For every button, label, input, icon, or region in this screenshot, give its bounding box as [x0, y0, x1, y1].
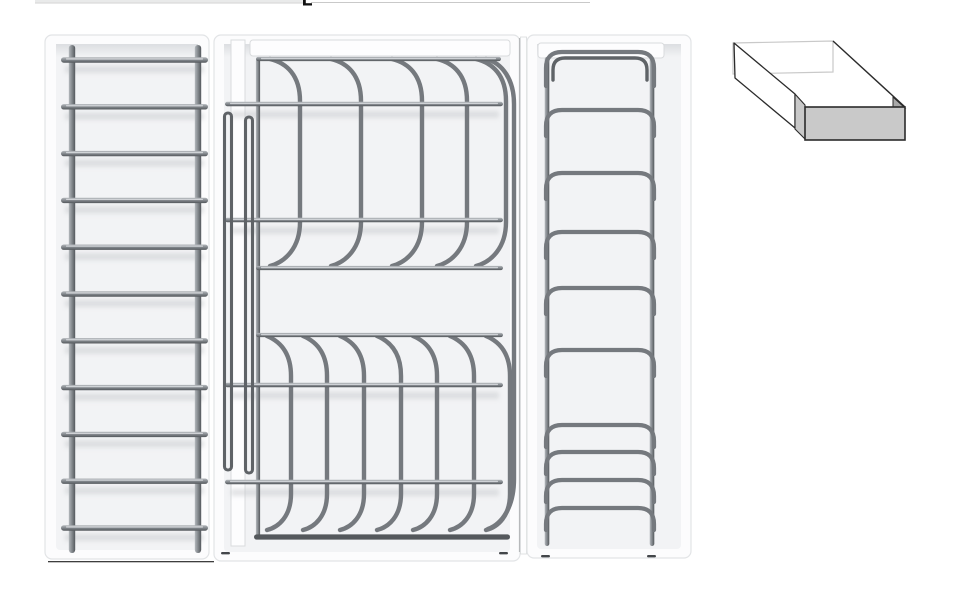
rack-rung [61, 104, 208, 109]
drawer-left-side [734, 43, 795, 128]
rack-rung-highlight [66, 58, 203, 59]
rack-rung [61, 198, 208, 203]
rack-rung-highlight [66, 152, 203, 153]
rack-rung-highlight [66, 480, 203, 481]
rack-rung-highlight [66, 246, 203, 247]
tray-side-strip [521, 37, 527, 554]
rack-rung-highlight [66, 199, 203, 200]
mounting-bar [250, 40, 510, 56]
reflection-smudge [65, 487, 204, 494]
rack-rung [61, 525, 208, 530]
rack-rung [61, 338, 208, 343]
frame-bottom-wire [254, 534, 510, 539]
reflection-smudge [231, 227, 499, 234]
drawer-right-rim [833, 41, 905, 107]
panel-dish-drainer-rack [214, 35, 520, 561]
foot-shadow-tick [221, 552, 230, 554]
reflection-smudge [65, 66, 204, 73]
page [0, 0, 973, 600]
drawer-front-panel [805, 107, 905, 140]
reflection-smudge [65, 253, 204, 260]
front-cross-wire-highlight [230, 481, 498, 482]
panel-lid-holder-rack [521, 35, 692, 558]
rack-rung [61, 245, 208, 250]
front-cross-wire-highlight [230, 384, 498, 385]
reflection-smudge [65, 347, 204, 354]
reflection-smudge [65, 160, 204, 167]
rack-rung [61, 57, 208, 62]
frame-top-wire-highlight [261, 58, 496, 59]
rack-rung-highlight [66, 386, 203, 387]
page-crop-artifacts [35, 0, 590, 6]
frame-leg [256, 59, 260, 537]
catalog-product-image [0, 0, 973, 600]
tray-inner-shadow [56, 44, 198, 57]
rack-rung [61, 291, 208, 296]
frame-mid-wire-highlight [261, 334, 498, 335]
rack-rung-highlight [66, 292, 203, 293]
rack-rail [69, 45, 75, 553]
rack-rung-highlight [66, 526, 203, 527]
rack-rung-highlight [66, 433, 203, 434]
reflection-smudge [65, 394, 204, 401]
foot-shadow-tick [499, 552, 508, 554]
rack-rung-highlight [66, 105, 203, 106]
reflection-smudge [65, 300, 204, 307]
rack-rung [61, 151, 208, 156]
rack-rung-highlight [66, 339, 203, 340]
reflection-smudge [65, 113, 204, 120]
drawer-box-icon [733, 41, 905, 140]
rack-rung [61, 385, 208, 390]
cropped-corner-mark [303, 3, 312, 5]
reflection-smudge [65, 440, 204, 447]
front-cross-wire-highlight [230, 219, 498, 220]
tray-inner [537, 44, 681, 549]
rack-rung [61, 432, 208, 437]
foot-shadow-tick [647, 555, 656, 557]
reflection-smudge [65, 534, 204, 541]
tray-inner [56, 44, 198, 550]
foot-shadow-tick [541, 555, 550, 557]
cropped-band-edge [35, 3, 305, 4]
reflection-smudge [65, 206, 204, 213]
cropped-rule-line [311, 2, 590, 3]
front-cross-wire-highlight [230, 103, 498, 104]
frame-mid-wire-highlight [261, 267, 498, 268]
rack-rung [61, 479, 208, 484]
rack-rail [195, 45, 201, 553]
reflection-smudge [231, 111, 499, 118]
tray-bottom-shadow-line [48, 561, 214, 562]
panel-plate-ladder-rack [45, 35, 214, 562]
